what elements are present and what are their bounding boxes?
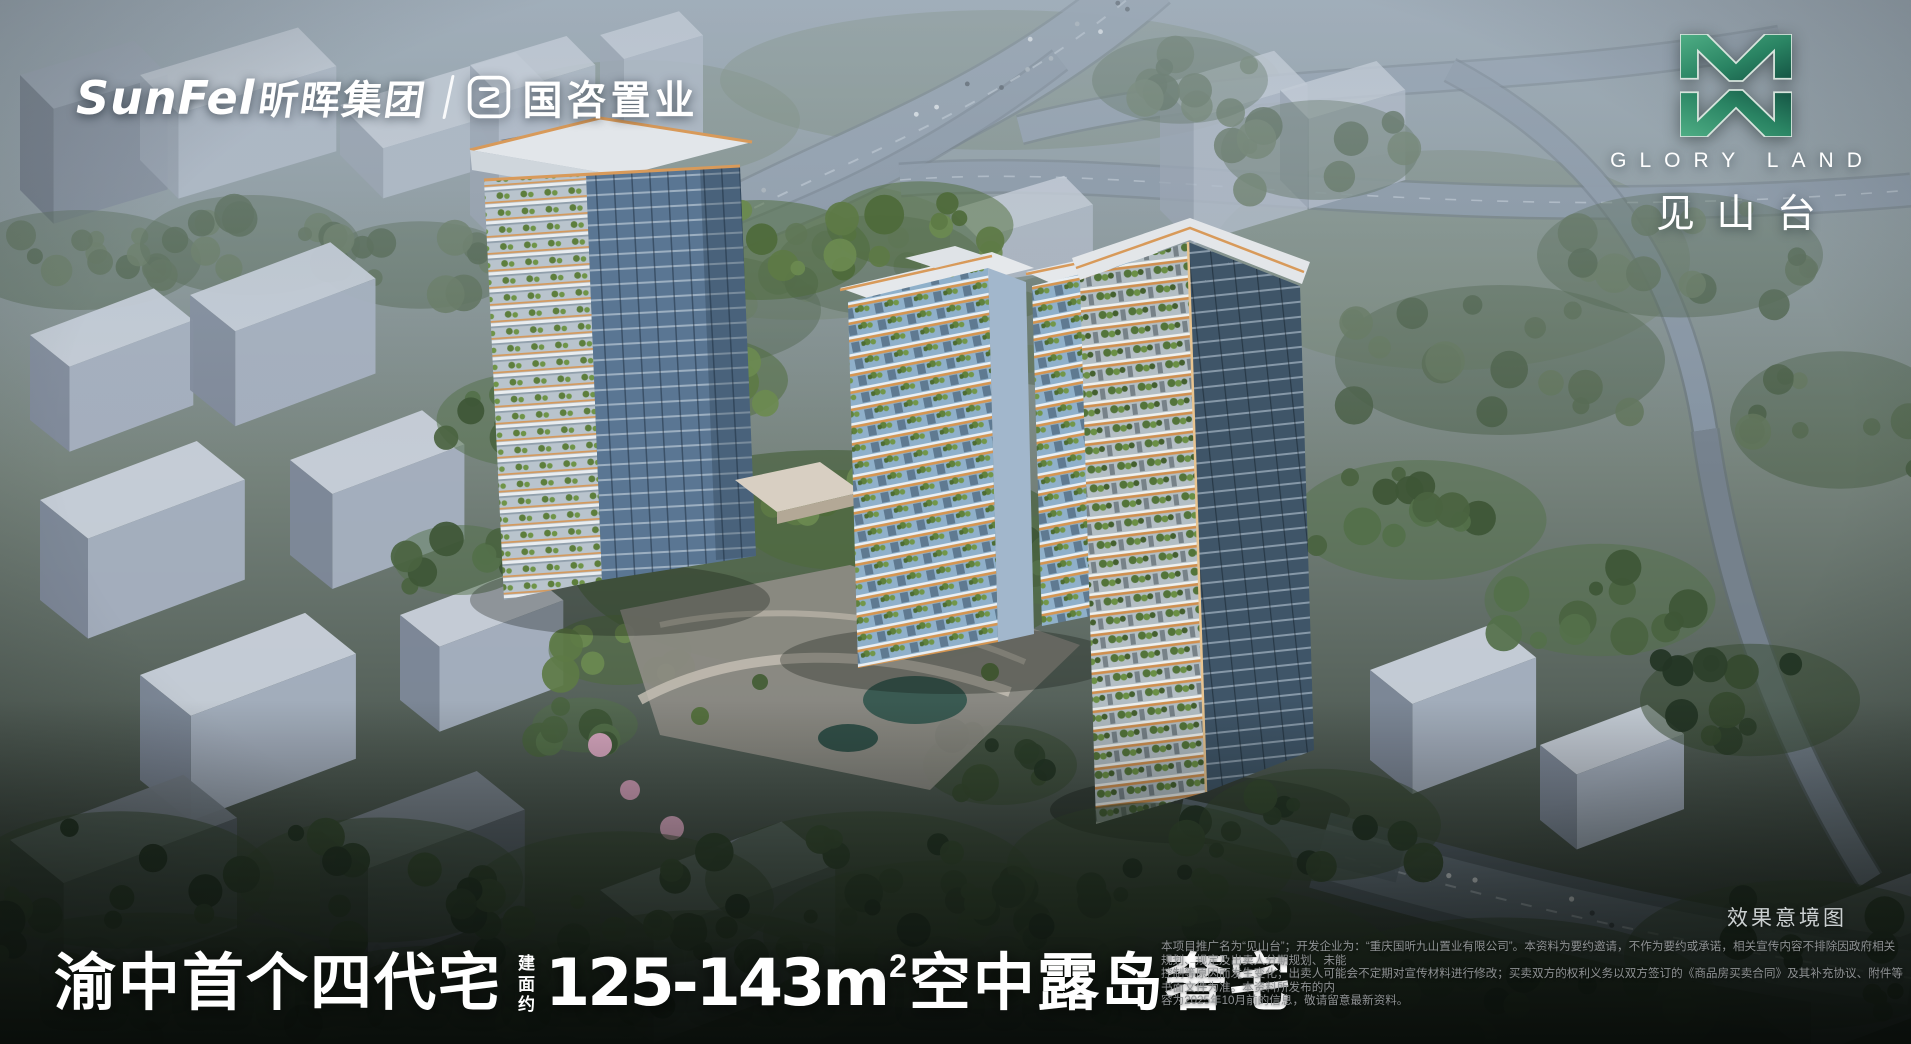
brand-name-en: GLORY LAND <box>1578 149 1894 173</box>
sunfei-cn-wordmark: 昕晖集团 <box>255 68 431 126</box>
logo-divider <box>443 75 455 119</box>
disclaimer-line: 控制等原因而发生变化；出卖人可能会不定期对宣传材料进行修改；买卖双方的权利义务以… <box>1161 967 1903 994</box>
sunfei-latin-wordmark: SunFel <box>76 71 255 125</box>
disclaimer: 本项目推广名为“见山台”；开发企业为：“重庆国昕九山置业有限公司”。本资料为要约… <box>1161 940 1903 1008</box>
headline-area-range: 125-143m <box>545 952 887 1016</box>
sunfei-logo: SunFel 昕晖集团 <box>76 68 427 126</box>
developer-logos: SunFel 昕晖集团 国咨置业 <box>76 68 698 126</box>
disclaimer-line: 容为2025年10月前的信息，敬请留意最新资料。 <box>1161 994 1903 1008</box>
guozi-emblem-icon <box>466 74 512 120</box>
glory-land-butterfly-icon <box>1680 34 1792 137</box>
render-label: 效果意境图 <box>1161 902 1847 932</box>
headline: 渝中首个四代宅 建 面 约 125-143m 2 空中露岛奢宅 <box>54 952 1293 1016</box>
disclaimer-line: 本项目推广名为“见山台”；开发企业为：“重庆国昕九山置业有限公司”。本资料为要约… <box>1161 940 1903 967</box>
headline-area-superscript: 2 <box>889 950 907 982</box>
headline-qualifier: 建 面 约 <box>518 955 535 1013</box>
brand-name-cn: 见山台 <box>1578 183 1894 239</box>
guozi-logo: 国咨置业 <box>466 68 698 126</box>
headline-part1: 渝中首个四代宅 <box>54 952 502 1016</box>
render-caption: 效果意境图 本项目推广名为“见山台”；开发企业为：“重庆国昕九山置业有限公司”。… <box>1161 902 1903 1008</box>
project-brand: GLORY LAND 见山台 <box>1578 34 1894 239</box>
poster-canvas: SunFel 昕晖集团 国咨置业 <box>0 0 1911 1044</box>
guozi-cn-wordmark: 国咨置业 <box>522 68 698 126</box>
